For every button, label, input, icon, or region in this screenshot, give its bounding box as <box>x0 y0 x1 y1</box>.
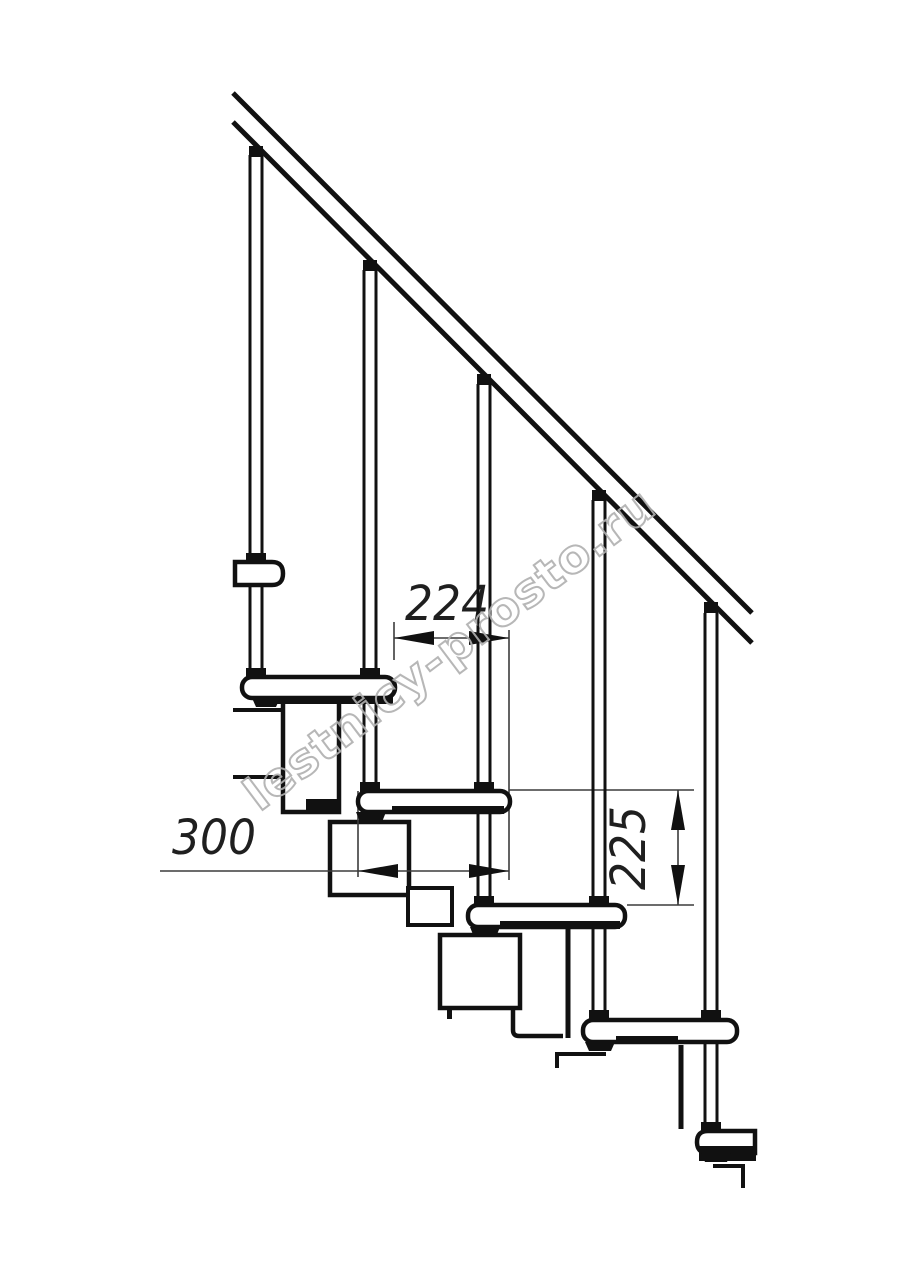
module-2 <box>330 822 409 895</box>
rail-cap-icon <box>704 602 718 613</box>
clamp-ring <box>246 553 266 563</box>
handrail <box>233 93 752 643</box>
baluster-4 <box>593 500 605 1014</box>
clamp-ring <box>589 896 609 906</box>
clamp-ring <box>589 1010 609 1020</box>
staircase-drawing: 224 300 225 <box>0 0 914 1280</box>
module-5-stub <box>713 1166 743 1188</box>
rail-cap-icon <box>363 260 377 271</box>
clamp-ring <box>360 782 380 792</box>
treads <box>235 562 755 1153</box>
baluster-5 <box>705 613 717 1126</box>
clamp-ring <box>701 1010 721 1020</box>
baluster-1 <box>250 155 262 672</box>
clamp-ring <box>701 1122 721 1132</box>
module-3-connector <box>513 1008 563 1036</box>
dimension-225: 225 <box>509 790 694 905</box>
module-joint-tab <box>306 799 340 813</box>
bracket <box>585 1042 615 1051</box>
module-3 <box>440 935 520 1008</box>
dimension-225-label: 225 <box>601 806 657 890</box>
clamp-ring <box>474 896 494 906</box>
watermark-text: lestnicy-prosto.ru <box>233 477 665 821</box>
bracket <box>356 812 386 822</box>
module-2-connector <box>408 888 452 925</box>
clamp-ring <box>474 782 494 792</box>
bracket <box>701 1153 731 1162</box>
rail-cap-icon <box>249 146 263 157</box>
rail-cap-icon <box>477 374 491 385</box>
clamp-ring <box>246 668 266 678</box>
bracket <box>252 698 280 707</box>
module-3-stub <box>447 1006 452 1019</box>
tread-upper-cut <box>235 562 283 585</box>
bracket <box>470 927 500 937</box>
staircase-drawing-page: 224 300 225 <box>0 0 914 1280</box>
dimension-300-label: 300 <box>172 810 256 866</box>
module-4-stub <box>557 1054 606 1068</box>
arrow-up-icon <box>671 790 685 830</box>
arrow-down-icon <box>671 865 685 905</box>
tread-underside-bands <box>275 696 756 1161</box>
